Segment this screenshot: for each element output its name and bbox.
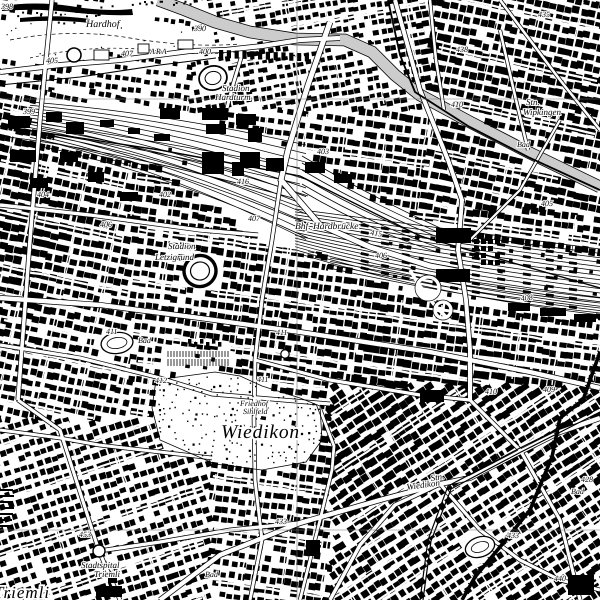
svg-text:433: 433 [507, 531, 519, 540]
svg-text:398: 398 [0, 2, 13, 11]
svg-text:Bad: Bad [571, 487, 585, 496]
svg-text:390: 390 [193, 24, 206, 33]
svg-text:404: 404 [37, 190, 49, 199]
svg-text:Hardhof: Hardhof [85, 19, 121, 30]
svg-text:406: 406 [100, 220, 112, 229]
svg-text:412: 412 [155, 376, 167, 385]
svg-text:438: 438 [456, 45, 468, 54]
svg-text:415: 415 [370, 228, 383, 239]
svg-text:Triemli: Triemli [0, 583, 50, 600]
svg-text:Triemli: Triemli [94, 569, 121, 579]
svg-text:406: 406 [375, 251, 387, 260]
svg-text:Bhf. Hardbrücke: Bhf. Hardbrücke [295, 222, 359, 232]
svg-text:Sihlfeld: Sihlfeld [243, 407, 268, 416]
svg-text:410: 410 [451, 100, 463, 109]
svg-text:416: 416 [237, 177, 249, 186]
svg-text:410: 410 [485, 387, 497, 396]
svg-text:409: 409 [543, 385, 555, 394]
svg-text:440: 440 [554, 574, 566, 583]
svg-text:402: 402 [159, 190, 171, 199]
svg-text:433: 433 [275, 517, 287, 526]
svg-text:Stn.: Stn. [526, 97, 540, 107]
svg-text:399: 399 [22, 107, 35, 116]
svg-text:403: 403 [317, 147, 329, 156]
svg-text:453: 453 [79, 530, 91, 539]
svg-text:405: 405 [541, 199, 553, 208]
svg-text:407: 407 [248, 214, 261, 223]
svg-text:Stadion: Stadion [168, 241, 196, 251]
svg-text:408: 408 [520, 293, 533, 303]
svg-text:Wipkingen: Wipkingen [523, 107, 561, 117]
svg-text:405: 405 [46, 56, 58, 65]
svg-text:411: 411 [106, 327, 117, 336]
svg-text:Wiedikon: Wiedikon [221, 422, 300, 443]
svg-text:411: 411 [257, 375, 268, 384]
svg-text:411: 411 [276, 328, 287, 337]
svg-text:Bad: Bad [138, 336, 152, 345]
svg-text:407: 407 [121, 49, 134, 58]
svg-text:Hardturm: Hardturm [214, 92, 251, 102]
svg-text:400: 400 [199, 47, 211, 56]
svg-text:Bad: Bad [517, 140, 531, 149]
svg-text:Letzigrund: Letzigrund [154, 252, 195, 262]
svg-text:ARA: ARA [149, 47, 168, 56]
svg-text:435: 435 [538, 10, 550, 19]
svg-text:Bad: Bad [205, 570, 219, 579]
svg-text:428: 428 [581, 475, 593, 484]
